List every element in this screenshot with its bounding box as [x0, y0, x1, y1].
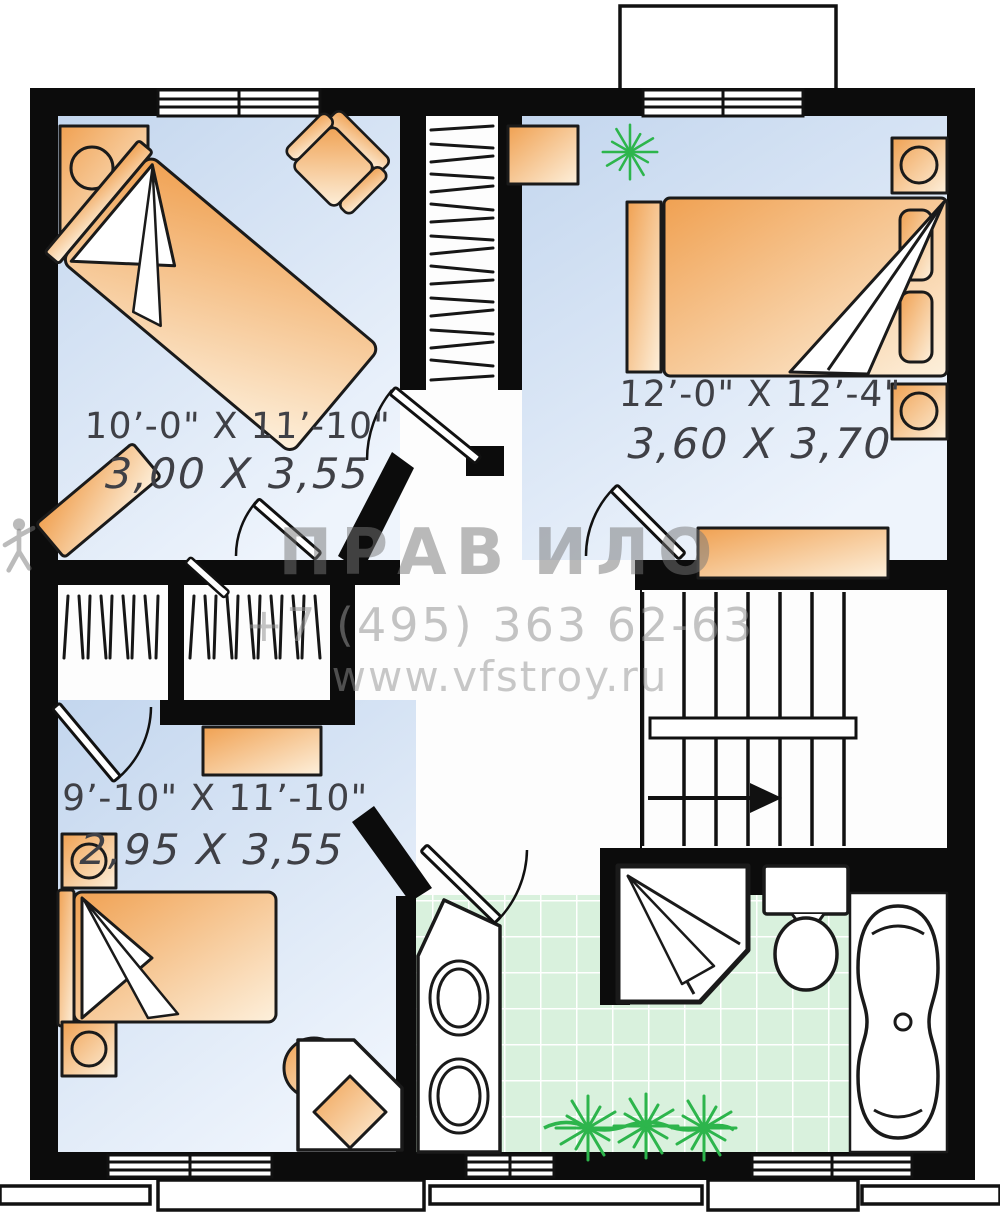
bottom-sill	[0, 1186, 150, 1204]
floor-plan: 10’-0" X 11’-10" 3,00 X 3,55 12’-0" X 12…	[0, 0, 1000, 1212]
window	[752, 1155, 912, 1177]
window	[158, 90, 320, 116]
stair-railing	[650, 718, 856, 738]
bottom-sill	[430, 1186, 702, 1204]
nightstand-with-lamp	[62, 1022, 116, 1076]
bottom-sill	[862, 1186, 1000, 1204]
nightstand-with-lamp	[892, 138, 947, 193]
window	[643, 90, 803, 116]
hallway-floor	[400, 560, 635, 587]
bedside-rug	[627, 202, 661, 372]
floor-plan-drawing	[0, 0, 1000, 1212]
top-dormer	[620, 6, 836, 100]
bathtub	[850, 893, 947, 1152]
long-dresser	[698, 528, 888, 578]
window	[466, 1155, 554, 1177]
dresser	[508, 126, 578, 184]
bedroom-top-right-size-metric: 3,60 X 3,70	[604, 422, 916, 466]
bedroom-bottom-left-size-metric: 2,95 X 3,55	[61, 828, 363, 872]
window	[108, 1155, 272, 1177]
bedroom-top-left-size-metric: 3,00 X 3,55	[79, 452, 396, 496]
bedroom-top-left-size-imperial: 10’-0" X 11’-10"	[79, 408, 395, 446]
bottom-sill	[708, 1180, 858, 1210]
bedroom-top-right-size-imperial: 12’-0" X 12’-4"	[604, 376, 915, 414]
vanity-two-sinks	[418, 900, 500, 1152]
single-bed	[58, 890, 276, 1026]
double-bed	[664, 198, 947, 376]
bottom-sill	[158, 1180, 424, 1210]
bedroom-bottom-left-size-imperial: 9’-10" X 11’-10"	[61, 780, 362, 818]
dresser	[203, 727, 321, 775]
